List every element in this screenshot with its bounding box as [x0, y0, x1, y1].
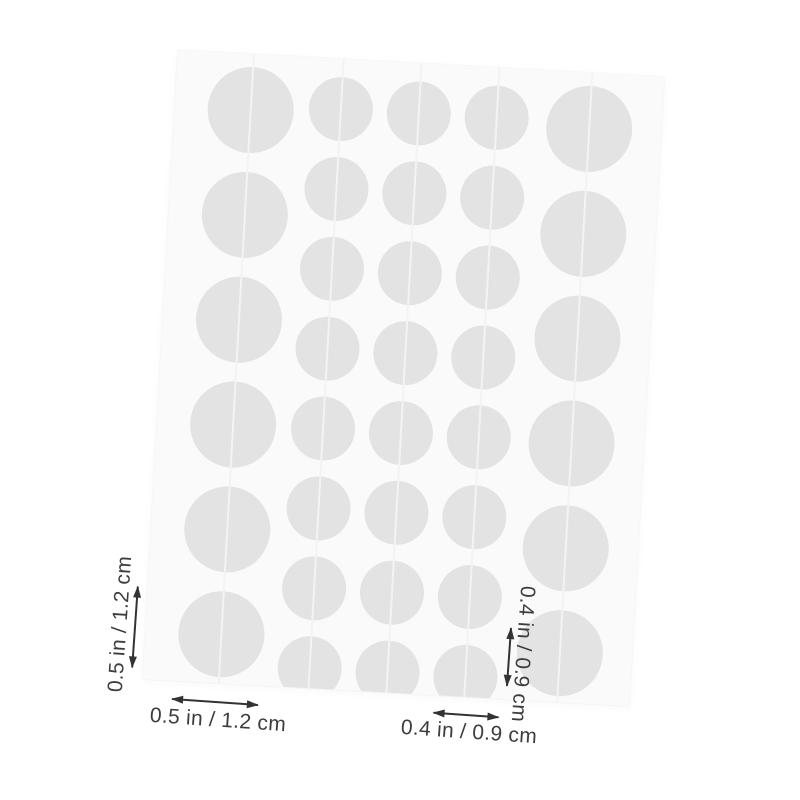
bottom-left-width-label: 0.5 in / 1.2 cm	[149, 705, 287, 735]
left-height-label: 0.5 in / 1.2 cm	[105, 555, 135, 693]
sticker-sheet	[143, 50, 664, 706]
product-image: 0.5 in / 1.2 cm 0.5 in / 1.2 cm 0.4 in /…	[0, 0, 800, 800]
bottom-right-width-arrow-icon	[434, 712, 499, 719]
bottom-left-width-arrow-icon	[172, 698, 258, 706]
